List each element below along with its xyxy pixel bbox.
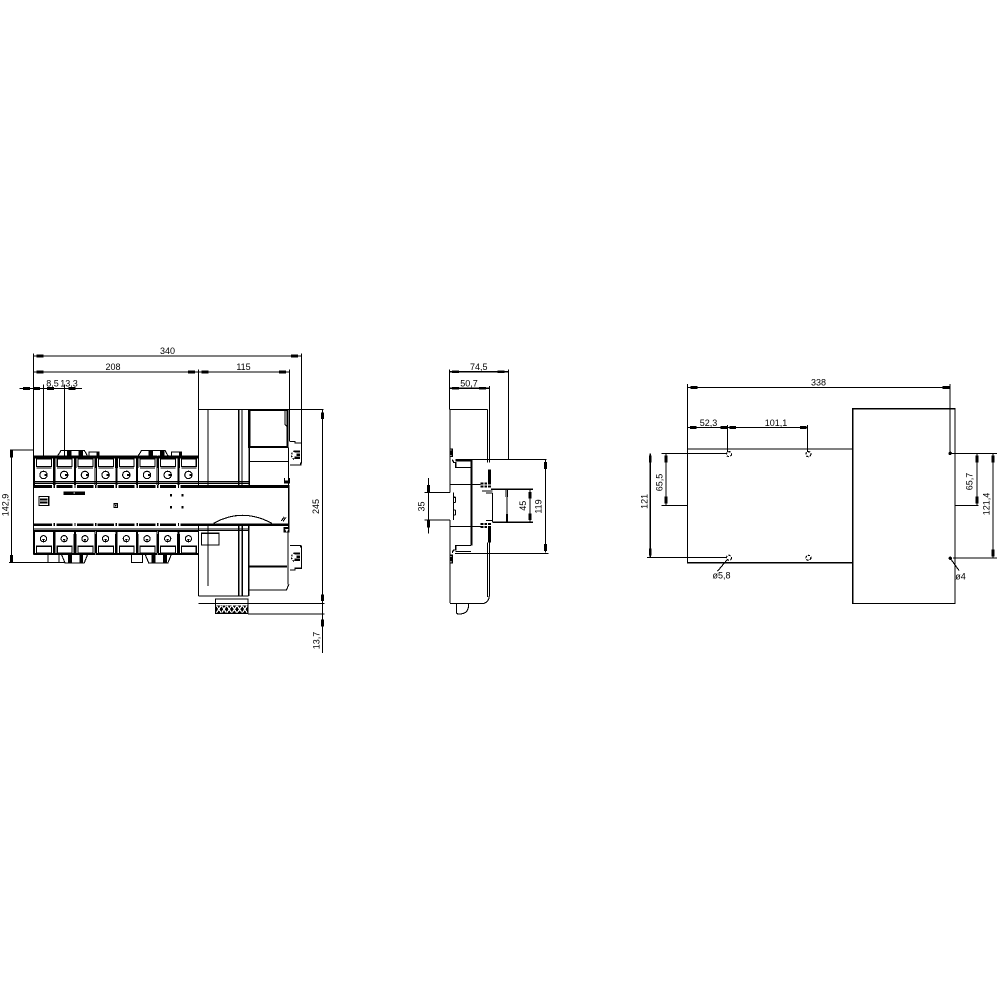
- svg-text:208: 208: [105, 362, 120, 372]
- svg-text:142,9: 142,9: [0, 494, 10, 517]
- svg-text:ø4: ø4: [955, 572, 966, 582]
- svg-text:52,3: 52,3: [700, 418, 718, 428]
- svg-text:ø5,8: ø5,8: [712, 570, 730, 580]
- svg-text:340: 340: [160, 346, 175, 356]
- svg-text:121: 121: [640, 494, 650, 509]
- svg-text:65,5: 65,5: [654, 474, 664, 492]
- svg-text:101,1: 101,1: [765, 418, 788, 428]
- svg-text:121,4: 121,4: [981, 493, 991, 516]
- svg-text:115: 115: [236, 362, 250, 372]
- svg-text:45: 45: [518, 501, 528, 511]
- svg-text:119: 119: [534, 499, 544, 513]
- svg-text:74,5: 74,5: [470, 362, 488, 372]
- svg-text:338: 338: [811, 377, 826, 387]
- svg-text:13,7: 13,7: [312, 632, 322, 650]
- svg-text:35: 35: [416, 501, 426, 511]
- svg-text:13,3: 13,3: [60, 379, 78, 389]
- svg-text:245: 245: [311, 499, 321, 514]
- svg-text:65,7: 65,7: [965, 473, 975, 491]
- svg-text:8,5: 8,5: [46, 379, 59, 389]
- svg-text:50,7: 50,7: [460, 378, 478, 388]
